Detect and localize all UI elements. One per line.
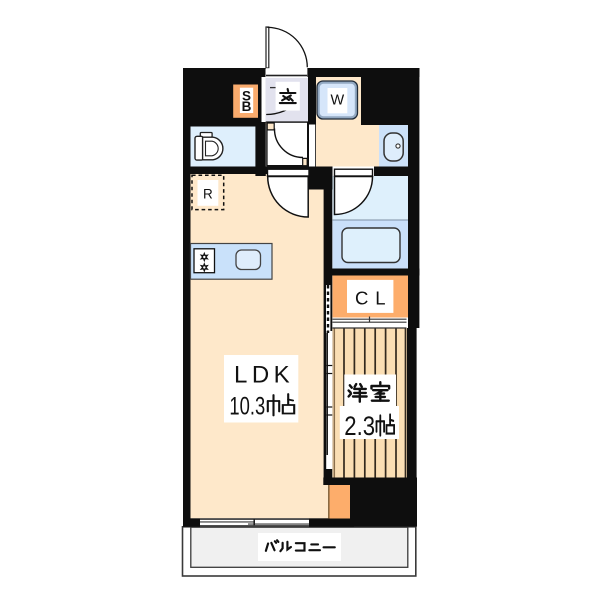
svg-text:LDK: LDK xyxy=(234,362,294,389)
svg-text:2.3: 2.3 xyxy=(344,411,375,441)
svg-text:B: B xyxy=(242,99,252,114)
svg-text:W: W xyxy=(331,93,345,109)
svg-text:CL: CL xyxy=(355,288,392,309)
svg-text:R: R xyxy=(203,187,213,202)
svg-text:10.3: 10.3 xyxy=(229,393,265,421)
